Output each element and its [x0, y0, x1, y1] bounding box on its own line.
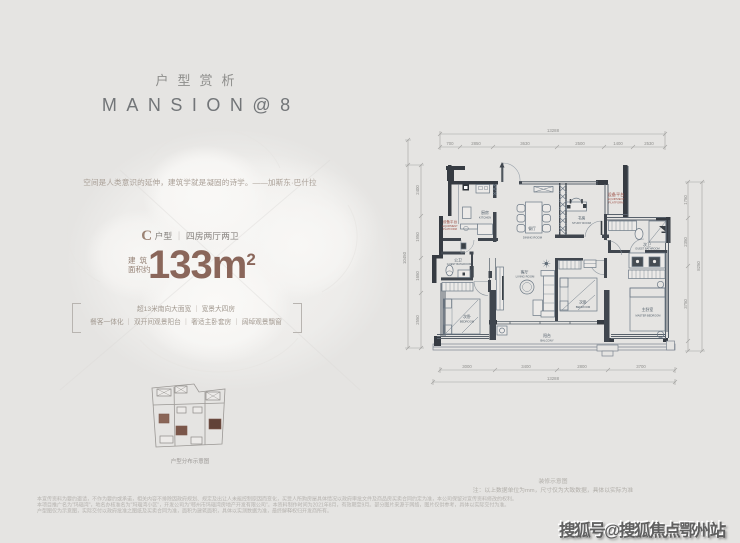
- svg-text:1950: 1950: [415, 232, 420, 242]
- svg-text:MASTER BEDROOM: MASTER BEDROOM: [636, 314, 661, 318]
- svg-text:2800: 2800: [577, 364, 587, 369]
- svg-text:BEDROOM: BEDROOM: [576, 305, 591, 309]
- svg-text:LIVING ROOM: LIVING ROOM: [516, 275, 535, 279]
- svg-text:2500: 2500: [575, 141, 585, 146]
- svg-text:BEDROOM: BEDROOM: [460, 320, 475, 324]
- svg-text:2850: 2850: [471, 141, 481, 146]
- svg-text:PLATFORM: PLATFORM: [443, 227, 457, 231]
- svg-text:3750: 3750: [683, 299, 688, 309]
- svg-text:13288: 13288: [547, 376, 560, 381]
- svg-text:3400: 3400: [521, 364, 531, 369]
- svg-text:DINING ROOM: DINING ROOM: [523, 236, 543, 240]
- svg-text:1400: 1400: [613, 141, 623, 146]
- svg-text:次卧: 次卧: [463, 314, 471, 319]
- svg-text:3000: 3000: [462, 364, 472, 369]
- svg-text:阳台: 阳台: [543, 333, 551, 338]
- svg-text:书房: 书房: [578, 216, 586, 221]
- svg-text:主卧室: 主卧室: [642, 307, 654, 312]
- svg-text:次卧: 次卧: [579, 300, 587, 305]
- svg-text:GUEST BATHROOM: GUEST BATHROOM: [447, 262, 471, 266]
- svg-text:700: 700: [446, 141, 454, 146]
- svg-text:厨房: 厨房: [481, 210, 489, 215]
- svg-text:STUDY ROOM: STUDY ROOM: [572, 221, 592, 225]
- svg-text:10450: 10450: [402, 251, 407, 264]
- svg-text:1650: 1650: [415, 271, 420, 281]
- svg-text:KITCHEN: KITCHEN: [479, 216, 491, 220]
- svg-text:次卫: 次卫: [643, 242, 651, 247]
- svg-text:1750: 1750: [683, 195, 688, 205]
- svg-text:设备平台: 设备平台: [443, 219, 458, 224]
- svg-text:8250: 8250: [696, 261, 701, 271]
- svg-text:BALCONY: BALCONY: [540, 339, 554, 343]
- svg-text:2530: 2530: [644, 141, 654, 146]
- svg-text:2400: 2400: [415, 185, 420, 195]
- svg-text:GUEST BATHROOM: GUEST BATHROOM: [635, 246, 659, 250]
- svg-text:餐厅: 餐厅: [528, 226, 536, 231]
- svg-text:2550: 2550: [415, 315, 420, 325]
- svg-text:3700: 3700: [636, 364, 646, 369]
- svg-text:3630: 3630: [520, 141, 530, 146]
- svg-text:13288: 13288: [547, 128, 560, 133]
- svg-text:PLATFORM: PLATFORM: [608, 201, 624, 205]
- svg-text:2350: 2350: [683, 237, 688, 247]
- svg-text:公卫: 公卫: [454, 258, 462, 263]
